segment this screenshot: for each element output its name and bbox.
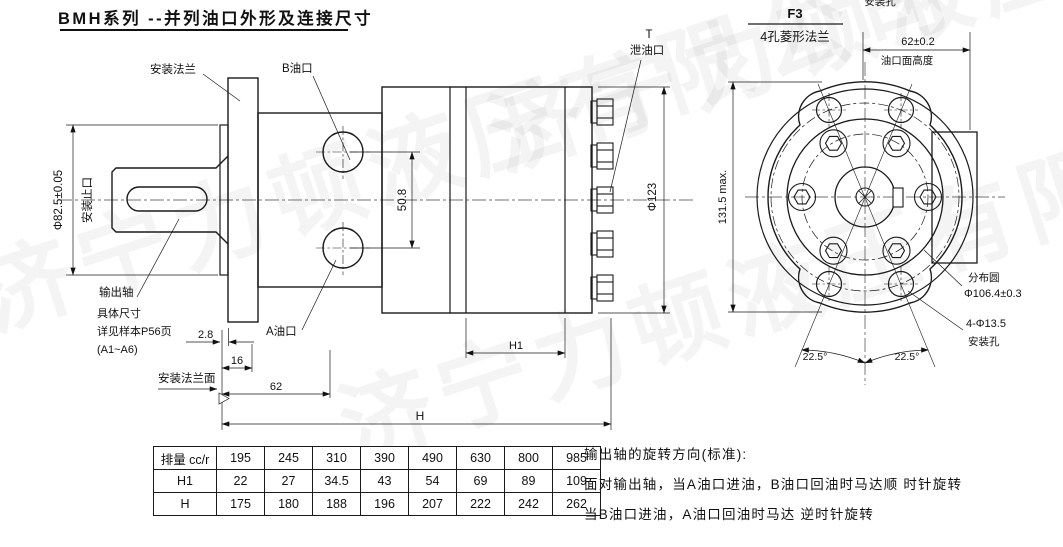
- f3-name: 4孔菱形法兰: [760, 30, 829, 44]
- table-row: 排量 cc/r 195 245 310 390 490 630 800 985: [154, 447, 601, 470]
- label-port-b: B油口: [282, 61, 313, 75]
- dim-16: 16: [231, 355, 243, 367]
- dim-angle-right: 22.5°: [895, 351, 920, 363]
- value-mounting-holes: 4-Φ13.5: [966, 318, 1006, 330]
- table-cell: 195: [217, 447, 265, 470]
- dim-H1: H1: [509, 340, 523, 352]
- table-row: H1 22 27 34.5 43 54 69 89 109: [154, 470, 601, 493]
- label-port-a: A油口: [266, 324, 297, 338]
- front-view-dimensions: [728, 32, 970, 363]
- title-underline: [60, 29, 348, 31]
- drain-port-leader: [610, 60, 641, 192]
- dim-spigot-name: 安装止口: [80, 177, 94, 223]
- table-cell: 69: [457, 470, 505, 493]
- row-label: H: [154, 493, 217, 516]
- dim-port-spacing: 50.8: [397, 189, 409, 211]
- label-pitch-circle: 分布圆: [968, 272, 1000, 284]
- dim-overall-height: 131.5 max.: [717, 170, 729, 224]
- shaft-note-line2: 详见样本P56页: [97, 324, 172, 338]
- dim-2-8: 2.8: [198, 329, 213, 341]
- label-mounting-holes: 安装孔: [968, 335, 1000, 348]
- dim-H: H: [416, 409, 425, 423]
- dim-62: 62: [270, 381, 282, 393]
- shaft-note-line1: 具体尺寸: [97, 306, 141, 320]
- clipped-top-label: 安装孔: [864, 0, 896, 8]
- label-drain-code: T: [645, 29, 652, 41]
- dim-port-face-height-label: 油口面高度: [881, 54, 934, 67]
- table-cell: 222: [457, 493, 505, 516]
- table-cell: 22: [217, 470, 265, 493]
- table-cell: 196: [361, 493, 409, 516]
- table-cell: 27: [265, 470, 313, 493]
- label-mounting-flange-face: 安装法兰面: [158, 371, 216, 385]
- table-cell: 180: [265, 493, 313, 516]
- shaft-note-line3: (A1~A6): [97, 344, 138, 356]
- rotation-note-cw: 面对输出轴，当A油口进油，B油口回油时马达顺 时针旋转: [584, 470, 962, 500]
- rotation-note-ccw: 当B油口进油，A油口回油时马达 逆时针旋转: [584, 500, 962, 530]
- side-view-dimensions: [66, 60, 670, 430]
- f3-code: F3: [787, 6, 802, 21]
- shaft-keyway: [127, 187, 207, 211]
- dim-spigot-diameter: Φ82.5±0.05: [53, 170, 65, 230]
- port-a-leader: [302, 260, 336, 330]
- table-row: H 175 180 188 196 207 222 242 262: [154, 493, 601, 516]
- value-pitch-circle: Φ106.4±0.3: [964, 288, 1022, 300]
- table-cell: 43: [361, 470, 409, 493]
- port-b-leader: [313, 76, 350, 160]
- label-output-shaft: 输出轴: [99, 285, 134, 299]
- table-cell: 54: [409, 470, 457, 493]
- table-cell: 245: [265, 447, 313, 470]
- dimension-table: 排量 cc/r 195 245 310 390 490 630 800 985 …: [153, 446, 601, 516]
- table-cell: 89: [505, 470, 553, 493]
- drawing-page: 济宁力顿液压有限公司 济宁力顿液压有限公司 济宁力顿液压有限公司: [0, 0, 1063, 547]
- table-cell: 800: [505, 447, 553, 470]
- label-drain-port: 泄油口: [630, 43, 665, 57]
- table-cell: 390: [361, 447, 409, 470]
- table-cell: 175: [217, 493, 265, 516]
- table-cell: 207: [409, 493, 457, 516]
- table-cell: 490: [409, 447, 457, 470]
- table-cell: 188: [313, 493, 361, 516]
- output-shaft-leader: [137, 219, 179, 297]
- table-cell: 310: [313, 447, 361, 470]
- row-label: H1: [154, 470, 217, 493]
- page-title: BMH系列 --并列油口外形及连接尺寸: [58, 5, 373, 29]
- dim-port-face-height: 62±0.2: [901, 36, 935, 48]
- dim-body-diameter: Φ123: [647, 183, 659, 211]
- rear-port-block: [932, 132, 977, 263]
- rotation-note-heading: 输出轴的旋转方向(标准):: [584, 440, 962, 470]
- dim-angle-left: 22.5°: [803, 351, 828, 363]
- label-mounting-flange: 安装法兰: [150, 62, 196, 76]
- table-cell: 242: [505, 493, 553, 516]
- front-centerlines: [745, 62, 1005, 385]
- side-view: Φ82.5±0.05 安装止口 50.8 Φ123 安装法兰 B油口 T 泄油口…: [53, 29, 695, 430]
- hub-keyway: [893, 188, 903, 207]
- row-label: 排量 cc/r: [154, 447, 217, 470]
- datum-symbol: [219, 393, 229, 404]
- front-view: F3 4孔菱形法兰 安装孔 62±0.2 油口面高度 131.5 max. 分布…: [717, 0, 1022, 385]
- mounting-holes-leader: [908, 291, 963, 330]
- table-cell: 630: [457, 447, 505, 470]
- rotation-notes: 输出轴的旋转方向(标准): 面对输出轴，当A油口进油，B油口回油时马达顺 时针旋…: [584, 440, 962, 530]
- table-cell: 34.5: [313, 470, 361, 493]
